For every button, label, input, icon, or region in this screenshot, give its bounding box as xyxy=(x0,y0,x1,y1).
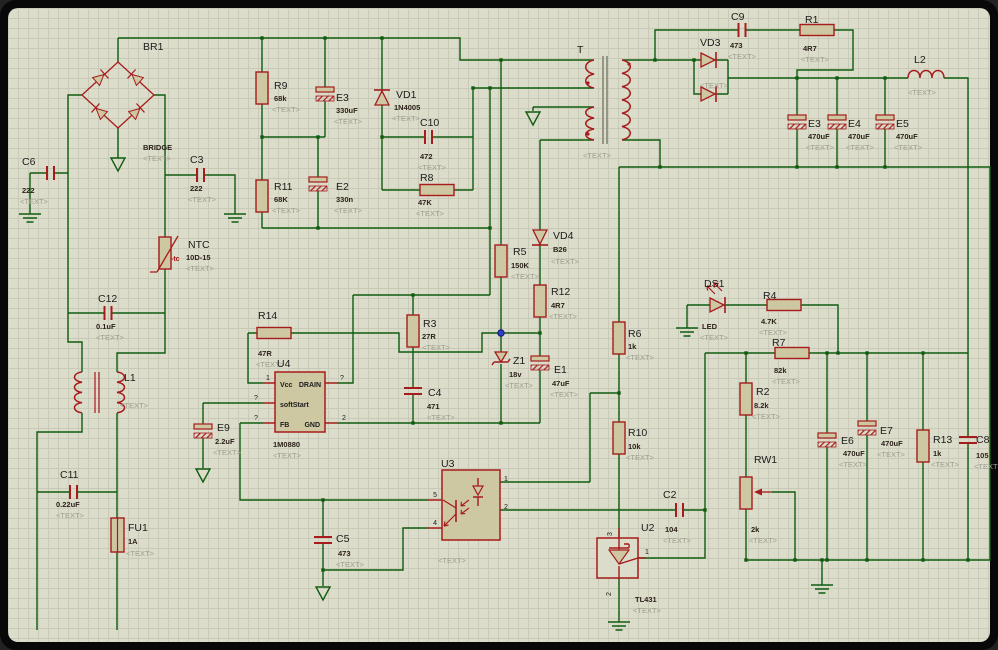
junction-dot xyxy=(380,135,383,138)
winding xyxy=(908,71,944,79)
U4-value: 1M0880 xyxy=(273,440,300,449)
ground-arrow-icon xyxy=(196,469,210,482)
resistor-body xyxy=(257,328,291,339)
U2-text: <TEXT> xyxy=(633,606,662,615)
U2-pin-number: 3 xyxy=(607,532,614,536)
E5-label: E5 xyxy=(896,118,909,130)
U4-pin-number: ? xyxy=(254,415,258,422)
R8-label: R8 xyxy=(420,172,434,184)
E1-label: E1 xyxy=(554,364,567,376)
U3-pin-number: 4 xyxy=(433,520,437,527)
C6-label: C6 xyxy=(22,156,36,168)
E9-value: 2.2uF xyxy=(215,437,235,446)
R5-value: 150K xyxy=(511,261,530,270)
polar-capacitor-icon xyxy=(531,356,549,370)
C11-value: 0.22uF xyxy=(56,500,80,509)
VD4-value: B26 xyxy=(553,245,567,254)
earth-ground-icon xyxy=(19,214,41,222)
U4-pin-number: ? xyxy=(340,375,344,382)
core xyxy=(95,372,99,413)
R10-value: 10k xyxy=(628,442,641,451)
U3-pin-number: 5 xyxy=(433,492,437,499)
R1-value: 4R7 xyxy=(803,44,817,53)
FU1-text: <TEXT> xyxy=(126,549,155,558)
L2-label: L2 xyxy=(914,54,926,66)
R8-value: 47K xyxy=(418,198,432,207)
phase-dot xyxy=(586,132,589,135)
L2-text: <TEXT> xyxy=(908,88,937,97)
VD4-label: VD4 xyxy=(553,230,574,242)
diode-icon xyxy=(701,52,716,68)
junction-dot xyxy=(703,508,706,511)
U3-text: <TEXT> xyxy=(438,556,467,565)
capacitor-C10[interactable]: C10 472 <TEXT> xyxy=(418,117,447,172)
schematic-window: BR1 BRIDGE <TEXT> C6 222 <TEXT> C3 222 <… xyxy=(0,0,998,650)
C8-value: 105 xyxy=(976,451,989,460)
capacitor-E5[interactable]: E5 470uF <TEXT> xyxy=(876,115,923,152)
R9-value: 68k xyxy=(274,94,287,103)
NTC-tc-label: -tc xyxy=(171,256,180,263)
E7-text: <TEXT> xyxy=(877,450,906,459)
R12-text: <TEXT> xyxy=(549,312,578,321)
junction-dot xyxy=(883,76,886,79)
C8-label: C8 xyxy=(976,434,990,446)
DS1-label: DS1 xyxy=(704,278,725,290)
T-label: T xyxy=(577,44,584,56)
junction-dot xyxy=(795,165,798,168)
Z1-label: Z1 xyxy=(513,355,525,367)
C10-text: <TEXT> xyxy=(418,163,447,172)
wire xyxy=(619,30,990,560)
junction-dot xyxy=(865,351,868,354)
FU1-label: FU1 xyxy=(128,522,148,534)
polar-capacitor-icon xyxy=(309,177,327,191)
U4-pin-fb: FB xyxy=(280,422,289,429)
junction-dot xyxy=(744,351,747,354)
junction-dot xyxy=(380,36,383,39)
junction-dot xyxy=(835,76,838,79)
bridge-BR1[interactable]: BR1 BRIDGE <TEXT> xyxy=(82,41,172,163)
resistor-R1[interactable]: R1 4R7 <TEXT> xyxy=(800,14,834,64)
junction-dot xyxy=(795,76,798,79)
R9-text: <TEXT> xyxy=(272,105,301,114)
resistor-body xyxy=(775,348,809,359)
R14-value: 47R xyxy=(258,349,272,358)
resistor-body xyxy=(256,180,268,212)
E4-text: <TEXT> xyxy=(846,143,875,152)
R13-value: 1k xyxy=(933,449,942,458)
junction-dot xyxy=(321,498,324,501)
L1-label: L1 xyxy=(124,372,136,384)
junction-dot xyxy=(921,558,924,561)
U4-pin-softstart: softStart xyxy=(280,402,309,409)
junction-dot xyxy=(411,293,414,296)
C11-text: <TEXT> xyxy=(56,511,85,520)
C10-value: 472 xyxy=(420,152,433,161)
C2-text: <TEXT> xyxy=(663,536,692,545)
junction-dot xyxy=(744,558,747,561)
R9-label: R9 xyxy=(274,80,288,92)
BR1-value: BRIDGE xyxy=(143,143,172,152)
capacitor-E2[interactable]: E2 330n <TEXT> xyxy=(309,177,363,215)
R7-text: <TEXT> xyxy=(772,377,801,386)
resistor-R5[interactable]: R5 150K <TEXT> xyxy=(495,245,540,281)
C4-value: 471 xyxy=(427,402,440,411)
ground-arrow-icon xyxy=(526,112,540,125)
junction-dot xyxy=(793,558,796,561)
U4-label: U4 xyxy=(277,358,291,370)
junction-dot xyxy=(488,226,491,229)
U4-pin-vcc: Vcc xyxy=(280,382,293,389)
junction-dot xyxy=(692,58,695,61)
capacitor-icon xyxy=(314,537,332,543)
junction-dot xyxy=(653,58,656,61)
VD3-text: <TEXT> xyxy=(700,81,729,90)
C4-text: <TEXT> xyxy=(427,413,456,422)
polar-capacitor-icon xyxy=(194,424,212,438)
E6-text: <TEXT> xyxy=(839,460,868,469)
resistor-R7[interactable]: R7 82k <TEXT> xyxy=(772,337,809,386)
polar-capacitor-icon xyxy=(876,115,894,129)
R3-text: <TEXT> xyxy=(422,343,451,352)
U2-pin-number: 2 xyxy=(606,592,613,596)
junction-dot xyxy=(865,558,868,561)
thermistor-NTC[interactable]: NTC 10D-15 <TEXT> -tc xyxy=(150,236,215,273)
capacitor-C9[interactable]: C9 473 <TEXT> xyxy=(728,11,757,61)
R7-value: 82k xyxy=(774,366,787,375)
ground-arrow-icon xyxy=(111,158,125,171)
junction-dot xyxy=(835,165,838,168)
NTC-label: NTC xyxy=(188,239,210,251)
junction-dot xyxy=(316,226,319,229)
polar-capacitor-icon xyxy=(828,115,846,129)
C3-label: C3 xyxy=(190,154,204,166)
wire xyxy=(262,38,490,228)
capacitor-icon xyxy=(70,485,77,499)
earth-ground-icon xyxy=(676,328,698,336)
R12-value: 4R7 xyxy=(551,301,565,310)
R13-text: <TEXT> xyxy=(931,460,960,469)
C6-value: 222 xyxy=(22,186,35,195)
capacitor-icon xyxy=(404,388,422,394)
optocoupler-U3[interactable]: 5 4 1 2 U3 <TEXT> xyxy=(428,458,508,565)
junction-dot xyxy=(966,558,969,561)
C9-label: C9 xyxy=(731,11,745,23)
resistor-body xyxy=(256,72,268,104)
winding xyxy=(75,372,83,413)
C5-label: C5 xyxy=(336,533,350,545)
origin-marker xyxy=(498,330,504,336)
U2-pin-number: 1 xyxy=(645,549,649,556)
inductor-L2[interactable]: L2 <TEXT> xyxy=(908,54,944,97)
R3-label: R3 xyxy=(423,318,437,330)
R10-text: <TEXT> xyxy=(626,453,655,462)
U2-value: TL431 xyxy=(635,595,657,604)
E5-text: <TEXT> xyxy=(894,143,923,152)
junction-dot xyxy=(820,558,823,561)
C6-text: <TEXT> xyxy=(20,197,49,206)
DS1-text: <TEXT> xyxy=(700,333,729,342)
R12-label: R12 xyxy=(551,286,570,298)
resistor-body xyxy=(740,477,752,509)
junction-dot xyxy=(836,351,839,354)
wiper-arrow xyxy=(754,489,762,496)
BR1-text: <TEXT> xyxy=(143,154,172,163)
resistor-body xyxy=(420,185,454,196)
resistor-body xyxy=(800,25,834,36)
C4-label: C4 xyxy=(428,387,442,399)
diode-icon xyxy=(532,230,548,245)
E5-value: 470uF xyxy=(896,132,918,141)
capacitor-icon xyxy=(425,130,432,144)
E3a-text: <TEXT> xyxy=(334,117,363,126)
U4-pin-number: 1 xyxy=(266,375,270,382)
E3a-label: E3 xyxy=(336,92,349,104)
E9-text: <TEXT> xyxy=(213,448,242,457)
C9-value: 473 xyxy=(730,41,743,50)
capacitor-C5[interactable]: C5 473 <TEXT> xyxy=(314,533,365,569)
resistor-R8[interactable]: R8 47K <TEXT> xyxy=(416,172,454,218)
polar-capacitor-icon xyxy=(818,433,836,447)
L1-text: <TEXT> xyxy=(120,401,149,410)
zener-Z1[interactable]: Z1 18v <TEXT> xyxy=(492,352,534,390)
capacitor-C3[interactable]: C3 222 <TEXT> xyxy=(188,154,217,204)
U3-pin-number: 2 xyxy=(504,504,508,511)
capacitor-icon xyxy=(739,23,746,37)
junction-dot xyxy=(538,331,541,334)
C12-text: <TEXT> xyxy=(96,333,125,342)
junction-dot xyxy=(471,86,474,89)
E1-value: 47uF xyxy=(552,379,570,388)
RW1-text: <TEXT> xyxy=(749,536,778,545)
C9-text: <TEXT> xyxy=(728,52,757,61)
junction-dot xyxy=(617,391,620,394)
inductor-L1[interactable]: L1 <TEXT> xyxy=(75,372,149,413)
polar-capacitor-icon xyxy=(858,421,876,435)
DS1-value: LED xyxy=(702,322,718,331)
U2-label: U2 xyxy=(641,522,655,534)
R2-label: R2 xyxy=(756,386,770,398)
resistor-body xyxy=(740,383,752,415)
zener-icon xyxy=(495,352,507,362)
R6-label: R6 xyxy=(628,328,642,340)
diode-VD3[interactable]: VD3 <TEXT> xyxy=(700,37,729,102)
E3b-label: E3 xyxy=(808,118,821,130)
VD1-value: 1N4005 xyxy=(394,103,420,112)
capacitor-icon xyxy=(197,168,204,182)
earth-ground-icon xyxy=(811,585,833,593)
T-text: <TEXT> xyxy=(583,151,612,160)
FU1-value: 1A xyxy=(128,537,138,546)
R4-label: R4 xyxy=(763,290,777,302)
capacitor-E4[interactable]: E4 470uF <TEXT> xyxy=(828,115,875,152)
phase-dot xyxy=(586,81,589,84)
phase-dot xyxy=(627,62,630,65)
R11-text: <TEXT> xyxy=(272,206,301,215)
resistor-R3[interactable]: R3 27R <TEXT> xyxy=(407,315,451,352)
capacitor-E3-left[interactable]: E3 330uF <TEXT> xyxy=(316,87,363,126)
junction-dot xyxy=(921,351,924,354)
R2-text: <TEXT> xyxy=(752,412,781,421)
U4-pin-number: 2 xyxy=(342,415,346,422)
resistor-R4[interactable]: R4 4.7K <TEXT> xyxy=(759,290,801,337)
bridge-outline xyxy=(82,62,154,128)
U3-label: U3 xyxy=(441,458,455,470)
capacitor-C2[interactable]: C2 104 <TEXT> xyxy=(663,489,692,545)
VD1-label: VD1 xyxy=(396,89,417,101)
earth-ground-icon xyxy=(608,622,630,630)
R6-text: <TEXT> xyxy=(626,353,655,362)
E2-text: <TEXT> xyxy=(334,206,363,215)
C3-value: 222 xyxy=(190,184,203,193)
C5-value: 473 xyxy=(338,549,351,558)
ic-U4[interactable]: Vcc DRAIN softStart FB GND 1 ? ? ? 2 U4 … xyxy=(254,358,346,460)
resistor-body xyxy=(613,422,625,454)
E4-value: 470uF xyxy=(848,132,870,141)
R5-label: R5 xyxy=(513,246,527,258)
transformer-T[interactable]: T <TEXT> xyxy=(577,44,631,160)
R6-value: 1k xyxy=(628,342,637,351)
R1-label: R1 xyxy=(805,14,819,26)
capacitor-C8[interactable]: C8 105 <TEXT> xyxy=(959,434,998,471)
E4-label: E4 xyxy=(848,118,861,130)
E3b-text: <TEXT> xyxy=(806,143,835,152)
C2-value: 104 xyxy=(665,525,678,534)
R4-text: <TEXT> xyxy=(759,328,788,337)
capacitor-E6[interactable]: E6 470uF <TEXT> xyxy=(818,433,868,469)
C8-text: <TEXT> xyxy=(974,462,998,471)
C3-text: <TEXT> xyxy=(188,195,217,204)
R2-value: 8.2k xyxy=(754,401,769,410)
diode-icon xyxy=(374,90,390,105)
secondary-winding xyxy=(622,60,630,140)
capacitor-C11[interactable]: C11 0.22uF <TEXT> xyxy=(56,469,85,520)
resistor-body xyxy=(917,430,929,462)
Z1-value: 18v xyxy=(509,370,522,379)
polar-capacitor-icon xyxy=(316,87,334,101)
R5-text: <TEXT> xyxy=(511,272,540,281)
junction-dot xyxy=(316,135,319,138)
C12-value: 0.1uF xyxy=(96,322,116,331)
capacitor-icon xyxy=(47,166,54,180)
E1-text: <TEXT> xyxy=(550,390,579,399)
led-diode-icon xyxy=(710,297,725,313)
junction-dot xyxy=(825,558,828,561)
polar-capacitor-icon xyxy=(788,115,806,129)
resistor-R2[interactable]: R2 8.2k <TEXT> xyxy=(740,383,781,421)
C11-label: C11 xyxy=(60,469,79,481)
R11-value: 68K xyxy=(274,195,288,204)
junction-dot xyxy=(883,165,886,168)
VD4-text: <TEXT> xyxy=(551,257,580,266)
capacitor-icon xyxy=(105,306,112,320)
Z1-text: <TEXT> xyxy=(505,381,534,390)
E7-label: E7 xyxy=(880,425,893,437)
C10-label: C10 xyxy=(420,117,439,129)
resistor-body xyxy=(534,285,546,317)
junction-dot xyxy=(488,86,491,89)
C5-text: <TEXT> xyxy=(336,560,365,569)
fuse-FU1[interactable]: FU1 1A <TEXT> xyxy=(111,518,155,558)
C2-label: C2 xyxy=(663,489,677,501)
RW1-value: 2k xyxy=(751,525,760,534)
resistor-R12[interactable]: R12 4R7 <TEXT> xyxy=(534,285,578,321)
RW1-label: RW1 xyxy=(754,454,777,466)
NTC-text: <TEXT> xyxy=(186,264,215,273)
junction-dot xyxy=(321,568,324,571)
E6-label: E6 xyxy=(841,435,854,447)
R3-value: 27R xyxy=(422,332,436,341)
R13-label: R13 xyxy=(933,434,952,446)
capacitor-E1[interactable]: E1 47uF <TEXT> xyxy=(531,356,579,399)
junction-dot xyxy=(499,421,502,424)
E6-value: 470uF xyxy=(843,449,865,458)
schematic-canvas[interactable]: BR1 BRIDGE <TEXT> C6 222 <TEXT> C3 222 <… xyxy=(0,0,998,650)
E7-value: 470uF xyxy=(881,439,903,448)
capacitor-E9[interactable]: E9 2.2uF <TEXT> xyxy=(194,422,242,457)
ground-arrow-icon xyxy=(316,587,330,600)
E2-value: 330n xyxy=(336,195,354,204)
E3b-value: 470uF xyxy=(808,132,830,141)
capacitor-C6[interactable]: C6 222 <TEXT> xyxy=(20,156,54,206)
R8-text: <TEXT> xyxy=(416,209,445,218)
junction-dot xyxy=(260,36,263,39)
junction-dot xyxy=(658,165,661,168)
E3a-value: 330uF xyxy=(336,106,358,115)
wire xyxy=(500,353,705,622)
led-DS1[interactable]: DS1 LED <TEXT> xyxy=(700,278,729,342)
E9-label: E9 xyxy=(217,422,230,434)
U4-pin-drain: DRAIN xyxy=(299,382,321,389)
diode-VD1[interactable]: VD1 1N4005 <TEXT> xyxy=(374,89,421,123)
shunt-regulator-U2[interactable]: 3 1 2 U2 TL431 <TEXT> xyxy=(597,522,662,615)
junction-dots xyxy=(260,36,969,571)
R14-label: R14 xyxy=(258,310,277,322)
NTC-value: 10D-15 xyxy=(186,253,211,262)
resistor-R11[interactable]: R11 68K <TEXT> xyxy=(256,180,301,215)
junction-dot xyxy=(411,421,414,424)
VD3-label: VD3 xyxy=(700,37,721,49)
resistor-body xyxy=(495,245,507,277)
VD1-text: <TEXT> xyxy=(392,114,421,123)
capacitor-C4[interactable]: C4 471 <TEXT> xyxy=(404,387,456,422)
R7-label: R7 xyxy=(772,337,786,349)
capacitor-icon xyxy=(676,503,683,517)
capacitor-icon xyxy=(959,437,977,443)
U4-pin-gnd: GND xyxy=(304,422,320,429)
U4-text: <TEXT> xyxy=(273,451,302,460)
resistor-body xyxy=(613,322,625,354)
R4-value: 4.7K xyxy=(761,317,777,326)
R11-label: R11 xyxy=(274,181,293,193)
earth-ground-icon xyxy=(224,214,246,222)
junction-dot xyxy=(323,36,326,39)
capacitor-C12[interactable]: C12 0.1uF <TEXT> xyxy=(96,293,125,342)
resistor-body xyxy=(407,315,419,347)
diode-VD4[interactable]: VD4 B26 <TEXT> xyxy=(532,230,580,266)
U3-pin-number: 1 xyxy=(504,476,508,483)
BR1-label: BR1 xyxy=(143,41,164,53)
R10-label: R10 xyxy=(628,427,647,439)
junction-dot xyxy=(825,351,828,354)
E2-label: E2 xyxy=(336,181,349,193)
U4-pin-number: ? xyxy=(254,395,258,402)
core xyxy=(603,56,607,144)
junction-dot xyxy=(499,58,502,61)
capacitor-E7[interactable]: E7 470uF <TEXT> xyxy=(858,421,906,459)
C12-label: C12 xyxy=(98,293,117,305)
R1-text: <TEXT> xyxy=(801,55,830,64)
